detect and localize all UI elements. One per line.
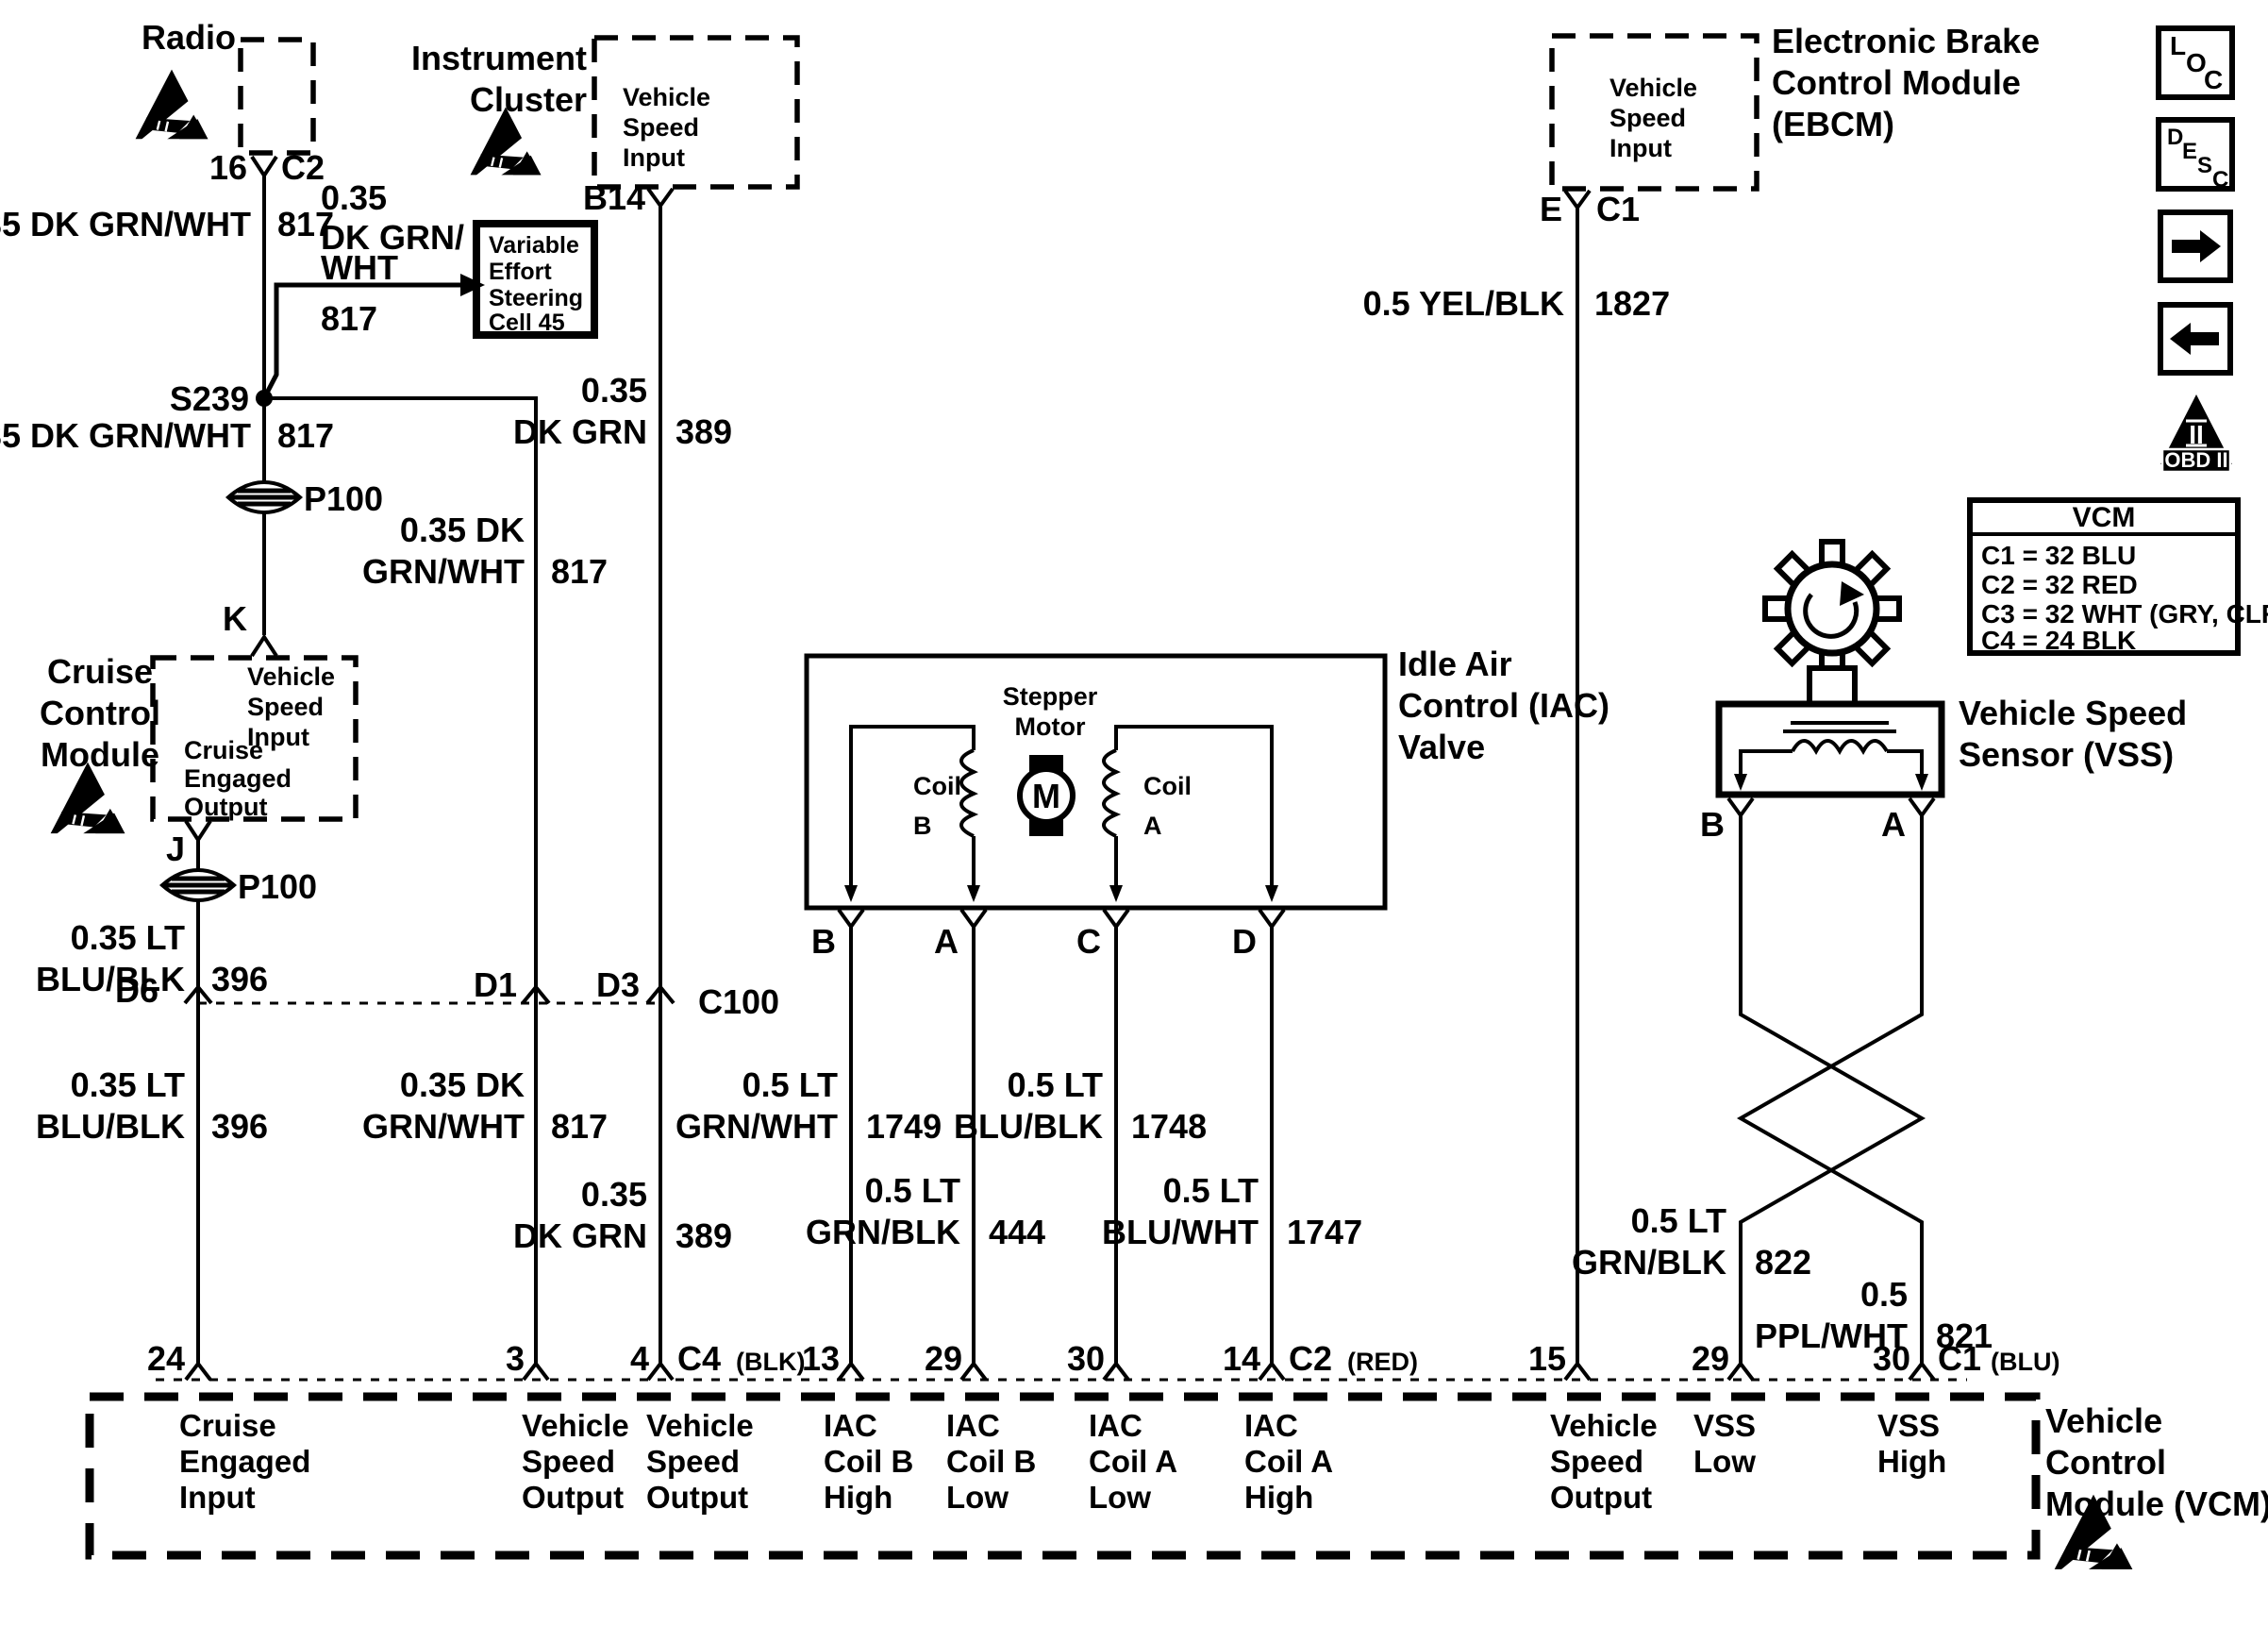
vcm-pin-number: 3 [506,1339,525,1378]
wire-spec: GRN/WHT [362,1107,525,1146]
ves-cell-label: Cell 45 [489,310,565,336]
instrument-cluster-title: Cluster [470,80,587,119]
grommet-label: P100 [238,867,317,906]
pin-fork-icon [1909,1364,1934,1380]
wire-spec: GRN/BLK [806,1213,960,1251]
vcm-module: Cruise Engaged Input Vehicle Speed Outpu… [90,1397,2268,1585]
tone-wheel-icon [1765,542,1899,676]
iac-title: Valve [1398,728,1485,766]
pin-fork-icon [648,189,673,206]
connector-label-d6: D6 [115,971,158,1010]
vcm-pin-number: 30 [1873,1339,1910,1378]
port-label: Vehicle [623,83,710,111]
wire-circuit: 817 [321,299,377,338]
wire-389-column: 0.35 DK GRN 389 0.35 DK GRN 389 [513,206,732,1365]
pin-fork-icon [1728,1364,1753,1380]
vcm-pin-number: 29 [925,1339,962,1378]
vcm-function: Engaged [179,1444,310,1479]
pin-fork-icon [186,821,210,840]
grommet-label: P100 [304,479,383,518]
port-label: Speed [623,113,699,142]
vcm-title: Control [2045,1443,2166,1482]
connector-label-d3: D3 [596,965,640,1004]
arrowhead-icon [1109,885,1123,902]
wire-spec: GRN/WHT [362,552,525,591]
vss-stem [1809,668,1855,706]
loc-letter: C [2204,65,2223,94]
desc-letter: D [2167,125,2183,150]
wire-spec: 0.5 LT [742,1065,838,1104]
esd-icon [131,70,211,155]
instrument-cluster-module: Instrument Cluster Vehicle Speed Input B… [411,38,797,217]
vcm-function: Coil A [1244,1444,1333,1479]
wire-spec: 0.5 [1860,1275,1908,1314]
wire-spec: 0.35 DK [400,511,525,549]
iac-valve: Idle Air Control (IAC) Valve Stepper Mot… [807,645,1609,961]
vcm-function: Coil B [946,1444,1036,1479]
iac-pin-d: D [1232,922,1257,961]
vcm-pin-number: 14 [1223,1339,1260,1378]
cruise-control-module: K Cruise Control Module Vehicle Speed In… [40,599,356,868]
pin-fork-icon [1104,910,1128,927]
wire-spec: WHT [321,248,398,287]
vcm-pin-number: 13 [802,1339,840,1378]
vcm-function: Output [646,1480,748,1515]
radio-title: Radio [142,18,236,57]
vcm-function: Vehicle [646,1408,754,1443]
cluster-pin-number: B14 [583,178,645,217]
obd2-numeral: II [2189,420,2204,449]
port-label: Engaged [184,764,292,793]
pin-fork-icon [1909,798,1934,815]
iac-title: Control (IAC) [1398,686,1609,725]
pin-fork-icon [252,637,276,656]
arrowhead-icon [1265,885,1278,902]
pin-fork-icon [648,1364,673,1380]
instrument-cluster-title: Instrument [411,39,587,77]
wire-spec: GRN/WHT [675,1107,838,1146]
coil-b-inductor-icon [961,750,974,836]
vcm-function: Coil B [824,1444,913,1479]
vss-title: Sensor (VSS) [1959,735,2174,774]
legend-row: C3 = 32 WHT (GRY, CLR) [1981,599,2268,629]
vcm-function: Output [1550,1480,1652,1515]
ebcm-title: Electronic Brake [1772,22,2040,60]
vss-pin-a: A [1881,805,1906,844]
esd-icon [466,108,544,190]
wire-circuit: 1749 [866,1107,942,1146]
vcm-function: Speed [646,1444,740,1479]
pin-fork-icon [1104,1364,1128,1380]
motor-m-label: M [1032,777,1060,815]
ccm-pin-j: J [166,830,185,868]
pin-fork-icon [1728,798,1753,815]
wire-circuit: 396 [211,1107,268,1146]
vcm-function: IAC [946,1408,1000,1443]
vcm-pin-number: 29 [1692,1339,1729,1378]
coil-b-label: B [913,812,932,840]
pin-fork-icon [1259,1364,1284,1380]
vcm-function: High [1877,1444,1946,1479]
wire-spec: BLU/BLK [36,960,185,998]
desc-letter: E [2182,139,2197,164]
wire-spec: BLU/BLK [36,1107,185,1146]
c100-connector-row: D1 D3 C100 [185,965,779,1021]
vcm-function: Cruise [179,1408,276,1443]
coil-a-inductor-icon [1104,750,1116,836]
vcm-function: Vehicle [522,1408,629,1443]
ebcm-title: Control Module [1772,63,2021,102]
port-label: Output [184,793,267,821]
obd2-label: OBD II [2164,448,2227,472]
port-label: Cruise [184,736,263,764]
vcm-title: Module (VCM) [2045,1484,2268,1523]
wire-spec: DK GRN [513,1216,647,1255]
vcm-function: Low [1693,1444,1756,1479]
vcm-pin-number: 15 [1528,1339,1566,1378]
grommet-p100-icon [162,870,234,900]
vcm-function: Low [946,1480,1009,1515]
wire-circuit: 389 [675,412,732,451]
vcm-function: High [1244,1480,1313,1515]
vss-twisted-pair: 0.5 LT GRN/BLK 822 0.5 PPL/WHT 821 [1572,815,1993,1365]
ccm-title: Control [40,694,160,732]
vcm-pin-number: 24 [147,1339,185,1378]
vcm-connector-color: (BLK) [736,1348,805,1376]
legend-row: C2 = 32 RED [1981,570,2138,599]
pin-fork-icon [524,1364,548,1380]
vcm-function: Vehicle [1550,1408,1658,1443]
vcm-function: Speed [522,1444,615,1479]
legend-title: VCM [2073,502,2136,533]
ebcm-title: (EBCM) [1772,105,1894,143]
ves-cell-label: Steering [489,285,583,311]
nav-icon-panel: L O C D E S C II OBD II [2159,28,2232,472]
pin-fork-icon [839,910,863,927]
pin-fork-icon [961,910,986,927]
wire-spec: GRN/BLK [1572,1243,1726,1282]
wire-spec: 0.35 LT [71,918,185,957]
vcm-pin-number: 30 [1067,1339,1105,1378]
wire-circuit: 817 [277,416,334,455]
wire-396-column: P100 0.35 LT BLU/BLK 396 D6 0.35 LT BLU/… [36,840,317,1365]
pin-fork-icon [839,1364,863,1380]
port-label: Vehicle [247,662,335,691]
wire-spec: 0.35 DK GRN/WHT [0,416,251,455]
ebcm-pin-number: E [1540,190,1562,228]
vcm-connector-label: C4 [677,1339,721,1378]
loc-letter: L [2170,31,2186,60]
vcm-function: High [824,1480,892,1515]
arrowhead-icon [844,885,858,902]
wire-spec: 0.35 DK [400,1065,525,1104]
wire-spec: BLU/WHT [1102,1213,1259,1251]
wire-spec: 0.5 LT [1631,1201,1726,1240]
pin-fork-icon [1259,910,1284,927]
coil-b-label: Coil [913,772,961,800]
coil-a-label: Coil [1143,772,1192,800]
iac-title: Idle Air [1398,645,1512,683]
vcm-function: VSS [1877,1408,1940,1443]
iac-pin-a: A [934,922,959,961]
vcm-title: Vehicle [2045,1401,2162,1440]
wire-circuit: 817 [551,552,608,591]
desc-letter: S [2197,153,2212,178]
wire-spec: 0.35 DK GRN/WHT [0,205,251,243]
vcm-function: Speed [1550,1444,1643,1479]
wire-spec: 0.35 [581,1175,647,1214]
splice-label: S239 [170,379,249,418]
port-label: Speed [1609,104,1686,132]
pin-fork-icon [1565,191,1590,208]
wire-spec: 0.35 [581,371,647,410]
wire-circuit: 396 [211,960,268,998]
pin-fork-icon [1565,1364,1590,1380]
back-button[interactable] [2160,305,2230,373]
vcm-function: Output [522,1480,624,1515]
wire-circuit: 444 [989,1213,1045,1251]
pin-fork-icon [186,1364,210,1380]
arrowhead-icon [967,885,980,902]
connector-label-d1: D1 [474,965,517,1004]
vcm-function: VSS [1693,1408,1756,1443]
vcm-function: IAC [824,1408,877,1443]
vss-title: Vehicle Speed [1959,694,2187,732]
vcm-function: Low [1089,1480,1151,1515]
wire-spec: 0.5 LT [865,1171,960,1210]
radio-pin-number: 16 [209,148,247,187]
vcm-connector-color: (BLU) [1991,1348,2060,1376]
wire-circuit: 822 [1755,1243,1811,1282]
vss-pin-b: B [1700,805,1725,844]
iac-pin-c: C [1076,922,1101,961]
ccm-title: Module [41,735,159,774]
wire-circuit: 1748 [1131,1107,1207,1146]
wire-spec: 0.5 YEL/BLK [1363,284,1564,323]
legend-row: C4 = 24 BLK [1981,626,2136,655]
obd2-badge: II OBD II [2160,394,2232,472]
stepper-motor-label: Stepper [1003,682,1098,711]
vcm-function: Coil A [1089,1444,1177,1479]
wire-spec: DK GRN [513,412,647,451]
wire-circuit: 389 [675,1216,732,1255]
port-label: Input [1609,134,1672,162]
coil-a-wire [1116,727,1272,887]
wire-spec: 0.5 LT [1008,1065,1103,1104]
ves-cell-label: Effort [489,259,552,285]
ccm-title: Cruise [47,652,153,691]
desc-letter: C [2212,167,2228,193]
vcm-connector-label: C2 [1289,1339,1332,1378]
ves-cell-label: Variable [489,232,579,259]
wire-spec: 0.35 [321,178,387,217]
desc-button[interactable]: D E S C [2159,120,2232,193]
vcm-pin-number: 4 [630,1339,649,1378]
coil-b-wire [851,727,974,887]
iac-pin-b: B [811,922,836,961]
wire-spec: 0.35 LT [71,1065,185,1104]
connector-label-c100: C100 [698,982,779,1021]
wire-circuit: 817 [551,1107,608,1146]
wire-spec: 0.5 LT [1163,1171,1259,1210]
vcm-connector-label: C1 [1938,1339,1981,1378]
port-label: Input [623,143,685,172]
vcm-function: IAC [1244,1408,1298,1443]
port-label: Speed [247,693,324,721]
legend-row: C1 = 32 BLU [1981,541,2136,570]
ccm-pin-k: K [223,599,247,638]
forward-button[interactable] [2160,212,2230,280]
wire-spec: BLU/BLK [954,1107,1103,1146]
stepper-motor-label: Motor [1015,712,1086,741]
grommet-p100-icon [228,482,300,512]
vcm-function: Input [179,1480,256,1515]
vcm-function: IAC [1089,1408,1142,1443]
ebcm-connector: C1 [1596,190,1640,228]
wire-circuit: 1827 [1594,284,1670,323]
radio-box [241,40,313,153]
loc-button[interactable]: L O C [2159,28,2232,97]
wiring-diagram-page: Radio 16 C2 Instrument Cluster Vehicle S… [0,0,2268,1621]
radio-connector: C2 [281,148,325,187]
vcm-connector-color: (RED) [1347,1348,1418,1376]
esd-icon [46,763,128,849]
pin-fork-icon [252,157,276,176]
vcm-connector-legend: VCM C1 = 32 BLU C2 = 32 RED C3 = 32 WHT … [1970,500,2268,655]
coil-a-label: A [1143,812,1162,840]
radio-module: Radio 16 C2 [131,18,325,187]
port-label: Vehicle [1609,74,1697,102]
pin-fork-icon [961,1364,986,1380]
wiring-diagram-canvas: Radio 16 C2 Instrument Cluster Vehicle S… [0,0,2268,1621]
wire-circuit: 1747 [1287,1213,1362,1251]
